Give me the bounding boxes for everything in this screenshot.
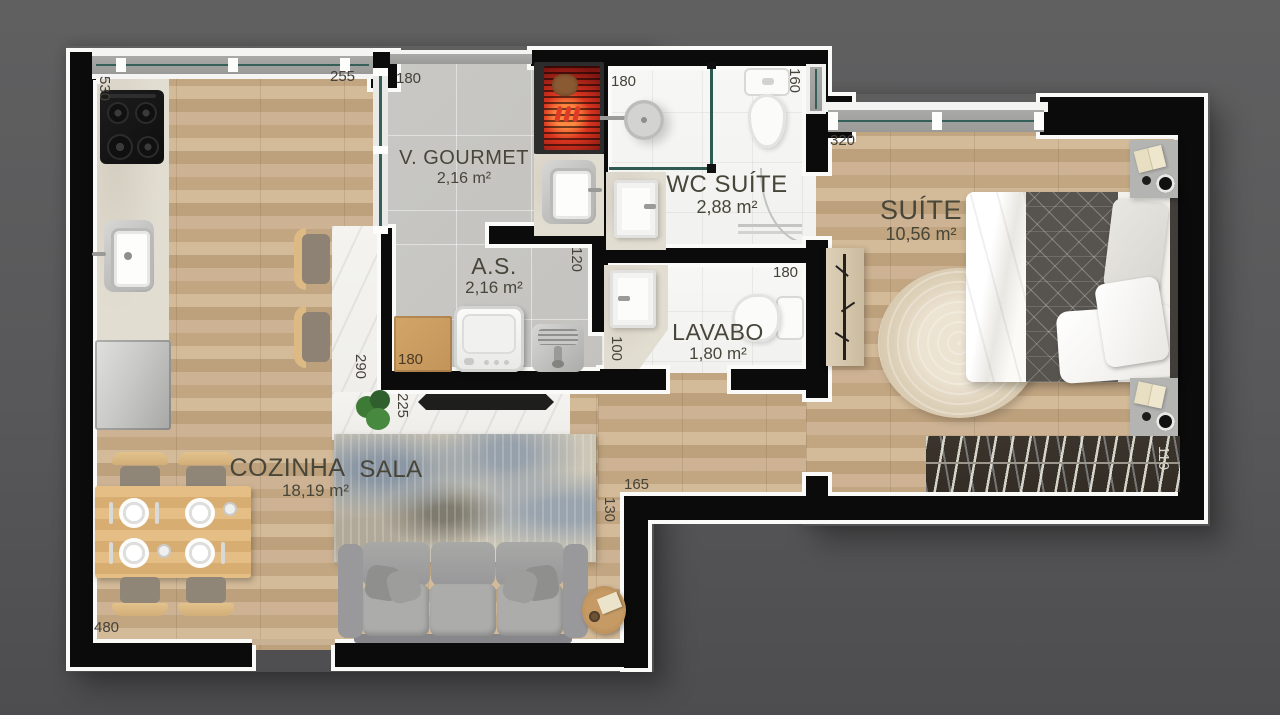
room-area: 2,88 m² [648, 198, 806, 217]
room-label-cozinha: COZINHA 18,19 m² [205, 455, 370, 500]
dim-kitchen-window: 255 [330, 68, 355, 85]
book [1134, 145, 1166, 173]
double-bed [966, 192, 1178, 382]
room-label-wcsuite: WC SUÍTE 2,88 m² [648, 172, 806, 217]
sofa [338, 542, 588, 644]
laundry-tub [532, 324, 584, 372]
nightstand [1130, 140, 1178, 198]
wall [1178, 97, 1204, 520]
wc-toilet [744, 68, 790, 150]
dinner-plate [119, 538, 149, 568]
room-label-suite: SUÍTE 10,56 m² [845, 196, 997, 245]
rack-rail [926, 462, 1180, 464]
bed-pillow [1094, 276, 1170, 369]
dim-island-long: 290 [352, 354, 369, 379]
book [1134, 381, 1166, 408]
side-table [582, 586, 626, 634]
dining-chair [178, 576, 234, 618]
room-label-vgourmet: V. GOURMET 2,16 m² [385, 148, 543, 187]
dim-island-short: 225 [394, 393, 411, 418]
clock-icon [1156, 412, 1175, 431]
dinner-plate [185, 498, 215, 528]
dim-wcsuite-right: 160 [786, 68, 803, 93]
clock-icon [1156, 174, 1175, 193]
wall [595, 248, 816, 263]
island-plant [352, 388, 400, 434]
room-area: 18,19 m² [205, 482, 370, 500]
wall [70, 52, 93, 667]
sofa-seat-cushion [430, 584, 496, 636]
dim-wcsuite-top: 180 [611, 73, 636, 90]
sofa-armrest [338, 544, 363, 638]
bar-stool [294, 228, 332, 290]
washing-machine [454, 306, 524, 372]
wall [335, 643, 648, 667]
wall [381, 228, 392, 388]
gourmet-window [390, 50, 532, 64]
dim-hall-width: 165 [624, 476, 649, 493]
wall [70, 643, 252, 667]
suite-window [824, 102, 1048, 136]
candle-icon [225, 504, 235, 514]
wall [600, 369, 666, 390]
gourmet-sink [542, 160, 596, 224]
bar-stool [294, 306, 332, 368]
cutlery-icon [155, 502, 159, 524]
dim-rack-width: 110 [1155, 446, 1172, 470]
room-area: 2,16 m² [428, 279, 560, 297]
dim-as-cabinet: 180 [398, 351, 423, 368]
sofa-armrest [563, 544, 588, 638]
dim-suite-window: 320 [830, 132, 855, 149]
room-name: LAVABO [648, 320, 788, 345]
kitchen-sink-basin [111, 228, 153, 290]
cutlery-icon [221, 542, 225, 564]
room-area: 2,16 m² [385, 170, 543, 187]
room-area: 10,56 m² [845, 225, 997, 244]
room-label-as: A.S. 2,16 m² [428, 254, 560, 297]
dining-chair [112, 576, 168, 618]
lavabo-faucet [618, 296, 630, 301]
wall [381, 371, 608, 390]
cooktop [100, 90, 164, 164]
cup-icon [589, 611, 600, 622]
barbecue-grill [534, 62, 604, 154]
sofa-back-cushion [431, 542, 495, 586]
entry-opening [252, 639, 335, 645]
headboard [1170, 192, 1178, 382]
dim-as-right: 120 [568, 247, 585, 272]
nightstand [1130, 378, 1178, 436]
dim-hall-step: 130 [601, 497, 618, 522]
room-label-lavabo: LAVABO 1,80 m² [648, 320, 788, 363]
wall [624, 496, 1204, 520]
wall [806, 240, 828, 398]
room-name: COZINHA [205, 455, 370, 482]
shower-head [624, 100, 664, 140]
grill-meat [552, 74, 578, 96]
cutlery-icon [109, 542, 113, 564]
gourmet-sink-basin [550, 168, 594, 222]
cooktop-burner [137, 136, 159, 158]
room-name: A.S. [428, 254, 560, 279]
room-label-sala: SALA [352, 457, 430, 483]
dim-bottom-wall: 480 [94, 619, 119, 636]
room-name: SUÍTE [845, 196, 997, 225]
room-area: 1,80 m² [648, 345, 788, 363]
cooktop-burner [135, 102, 157, 124]
candle-icon [159, 546, 169, 556]
book [597, 592, 622, 615]
shower-glass [609, 167, 713, 170]
floor-plan: COZINHA 18,19 m² SALA V. GOURMET 2,16 m²… [0, 0, 1280, 715]
dim-lavabo-top: 180 [773, 264, 798, 281]
dim-vgourmet-top: 180 [396, 70, 421, 87]
shower-glass [710, 62, 713, 170]
cooktop-burner [107, 134, 133, 160]
room-name: V. GOURMET [385, 148, 543, 170]
dinner-plate [119, 498, 149, 528]
clothes-rack [926, 436, 1180, 492]
kitchen-sink [104, 220, 154, 292]
room-name: WC SUÍTE [648, 172, 806, 198]
dim-kitchen-left: 530 [96, 76, 113, 101]
dinner-plate [185, 538, 215, 568]
refrigerator [95, 340, 171, 430]
cutlery-icon [109, 502, 113, 524]
gourmet-faucet [588, 188, 602, 192]
room-name: SALA [352, 457, 430, 483]
kitchen-faucet [92, 252, 106, 256]
dim-lavabo-left: 100 [608, 336, 625, 361]
island-tray [418, 394, 554, 410]
sideboard [826, 248, 864, 366]
cooktop-burner [107, 102, 129, 124]
wc-window [806, 64, 826, 114]
